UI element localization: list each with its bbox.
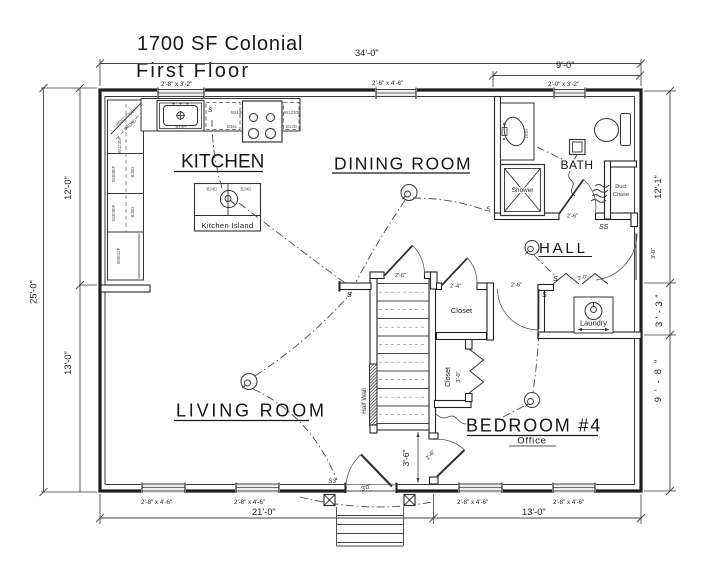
svg-text:S: S <box>542 292 547 299</box>
svg-text:25'-0": 25'-0" <box>29 280 39 304</box>
svg-text:W3090F: W3090F <box>111 165 116 182</box>
svg-text:W1230F: W1230F <box>284 110 301 115</box>
svg-text:Shower: Shower <box>512 187 535 194</box>
svg-text:13'-0": 13'-0" <box>63 351 73 375</box>
svg-text:Half Wall: Half Wall <box>361 388 368 414</box>
svg-text:2'-0" x 3'-2": 2'-0" x 3'-2" <box>548 81 579 88</box>
svg-text:1810: 1810 <box>524 129 529 139</box>
svg-text:W3612F: W3612F <box>116 247 121 264</box>
svg-text:34'-0": 34'-0" <box>355 48 379 58</box>
svg-text:21'-0": 21'-0" <box>252 507 276 517</box>
svg-text:2'-6": 2'-6" <box>511 283 522 289</box>
svg-text:2'-6": 2'-6" <box>567 214 578 220</box>
svg-text:B12D: B12D <box>286 124 297 129</box>
svg-text:2'-8" x 4'-6": 2'-8" x 4'-6" <box>553 499 584 506</box>
svg-text:3'-6": 3'-6" <box>401 450 411 467</box>
svg-text:1700 SF Colonial: 1700 SF Colonial <box>137 33 303 55</box>
svg-text:HALL: HALL <box>539 240 588 257</box>
svg-text:9'-8": 9'-8" <box>653 354 663 403</box>
svg-text:2'-4": 2'-4" <box>450 284 461 290</box>
svg-text:2'-8" x 3'-2": 2'-8" x 3'-2" <box>161 81 192 88</box>
svg-text:BATH: BATH <box>560 158 593 172</box>
svg-text:B12D: B12D <box>176 125 187 130</box>
svg-text:3'-0": 3'-0" <box>456 371 462 382</box>
svg-text:BEDROOM #4: BEDROOM #4 <box>466 416 602 436</box>
svg-text:Laundry: Laundry <box>580 319 607 328</box>
svg-text:S: S <box>486 206 491 213</box>
svg-text:2'-6" x 4'-6": 2'-6" x 4'-6" <box>372 80 403 87</box>
svg-text:B30D: B30D <box>130 207 135 218</box>
svg-text:Duct: Duct <box>615 184 627 190</box>
svg-text:12'-1": 12'-1" <box>653 175 663 199</box>
svg-text:13'-0": 13'-0" <box>522 507 546 517</box>
svg-text:2'-8" x 4'-6": 2'-8" x 4'-6" <box>457 499 488 506</box>
svg-text:B30D: B30D <box>130 167 135 178</box>
svg-text:LIVING ROOM: LIVING ROOM <box>176 401 327 421</box>
svg-text:12'-0": 12'-0" <box>63 176 73 200</box>
svg-text:9'-0": 9'-0" <box>556 60 575 70</box>
svg-text:2'-6": 2'-6" <box>395 273 406 279</box>
svg-text:Closet: Closet <box>445 367 452 387</box>
svg-text:Closet: Closet <box>451 306 473 315</box>
svg-text:DINING ROOM: DINING ROOM <box>334 154 472 174</box>
svg-text:2'-8" x 4'-6": 2'-8" x 4'-6" <box>234 499 265 506</box>
svg-text:S: S <box>208 107 213 114</box>
svg-text:3'-0": 3'-0" <box>651 248 657 259</box>
svg-text:B36L: B36L <box>227 124 238 129</box>
svg-text:3'-3": 3'-3" <box>654 291 664 327</box>
svg-text:Office: Office <box>517 436 546 447</box>
svg-text:S3: S3 <box>328 478 336 485</box>
svg-text:W1230F: W1230F <box>117 136 122 153</box>
svg-text:KITCHEN: KITCHEN <box>181 152 264 173</box>
svg-text:Chase: Chase <box>613 192 629 198</box>
svg-text:B24D: B24D <box>207 187 218 192</box>
svg-text:B24D: B24D <box>241 187 252 192</box>
svg-text:SS: SS <box>599 224 609 231</box>
svg-text:Kitchen Island: Kitchen Island <box>202 221 254 230</box>
svg-text:W3090F: W3090F <box>111 204 116 221</box>
svg-text:2'-8" x 4'-6": 2'-8" x 4'-6" <box>141 499 172 506</box>
